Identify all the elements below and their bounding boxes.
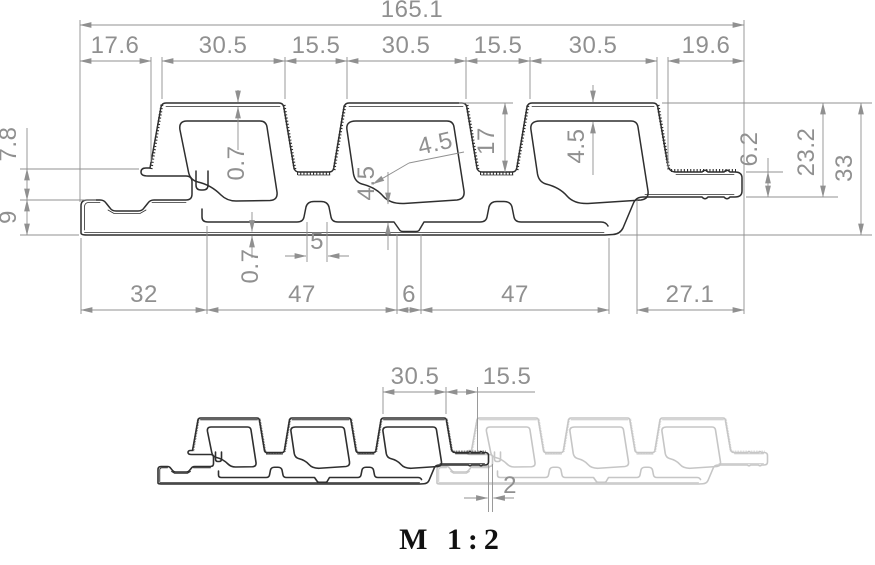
detail-dimension-labels: 30.5 15.5 2	[391, 363, 532, 499]
dim-0-7-top: 0.7	[223, 146, 250, 181]
dim-7-8: 7.8	[0, 127, 22, 162]
dimension-labels: 165.1 17.6 30.5 15.5 30.5 15.5 30.5 19.6…	[0, 0, 858, 308]
dim-9: 9	[0, 210, 22, 224]
dim-4-5-a: 4.5	[353, 166, 380, 201]
dim-30-5-b: 30.5	[382, 32, 431, 59]
dim-32: 32	[130, 281, 158, 308]
dim-overall-width: 165.1	[381, 0, 444, 23]
dim-4-5-c: 4.5	[563, 129, 590, 164]
detail-dim-2: 2	[503, 472, 517, 499]
dim-27-1: 27.1	[666, 281, 715, 308]
dim-30-5-c: 30.5	[569, 32, 618, 59]
dim-19-6: 19.6	[682, 32, 731, 59]
dim-15-5-b: 15.5	[474, 32, 523, 59]
dim-4-5-b: 4.5	[415, 127, 455, 161]
detail-dim-15-5: 15.5	[483, 363, 532, 390]
main-section-view: 165.1 17.6 30.5 15.5 30.5 15.5 30.5 19.6…	[0, 0, 872, 314]
drawing-sheet: 165.1 17.6 30.5 15.5 30.5 15.5 30.5 19.6…	[0, 0, 875, 565]
dim-30-5-a: 30.5	[199, 32, 248, 59]
dim-15-5-a: 15.5	[292, 32, 341, 59]
dim-47-a: 47	[288, 281, 316, 308]
dim-23-2: 23.2	[793, 128, 820, 177]
technical-drawing: 165.1 17.6 30.5 15.5 30.5 15.5 30.5 19.6…	[0, 0, 875, 565]
scale-label: M 1:2	[399, 523, 505, 556]
dim-47-b: 47	[501, 281, 529, 308]
dim-5: 5	[310, 228, 324, 255]
adjacent-panel-ghost-outline	[437, 418, 768, 484]
dim-0-7-bottom: 0.7	[237, 249, 264, 284]
detail-dimension-lines	[383, 392, 514, 498]
dim-17: 17	[473, 127, 500, 155]
dimension-lines	[27, 25, 861, 310]
dim-6-2: 6.2	[736, 132, 763, 167]
dim-33: 33	[831, 154, 858, 182]
assembly-detail-view: 30.5 15.5 2 M 1:2	[158, 363, 768, 556]
detail-dim-30-5: 30.5	[391, 363, 440, 390]
panel-profile-outline	[81, 103, 742, 235]
dim-6: 6	[402, 281, 416, 308]
dim-17-6: 17.6	[91, 32, 140, 59]
